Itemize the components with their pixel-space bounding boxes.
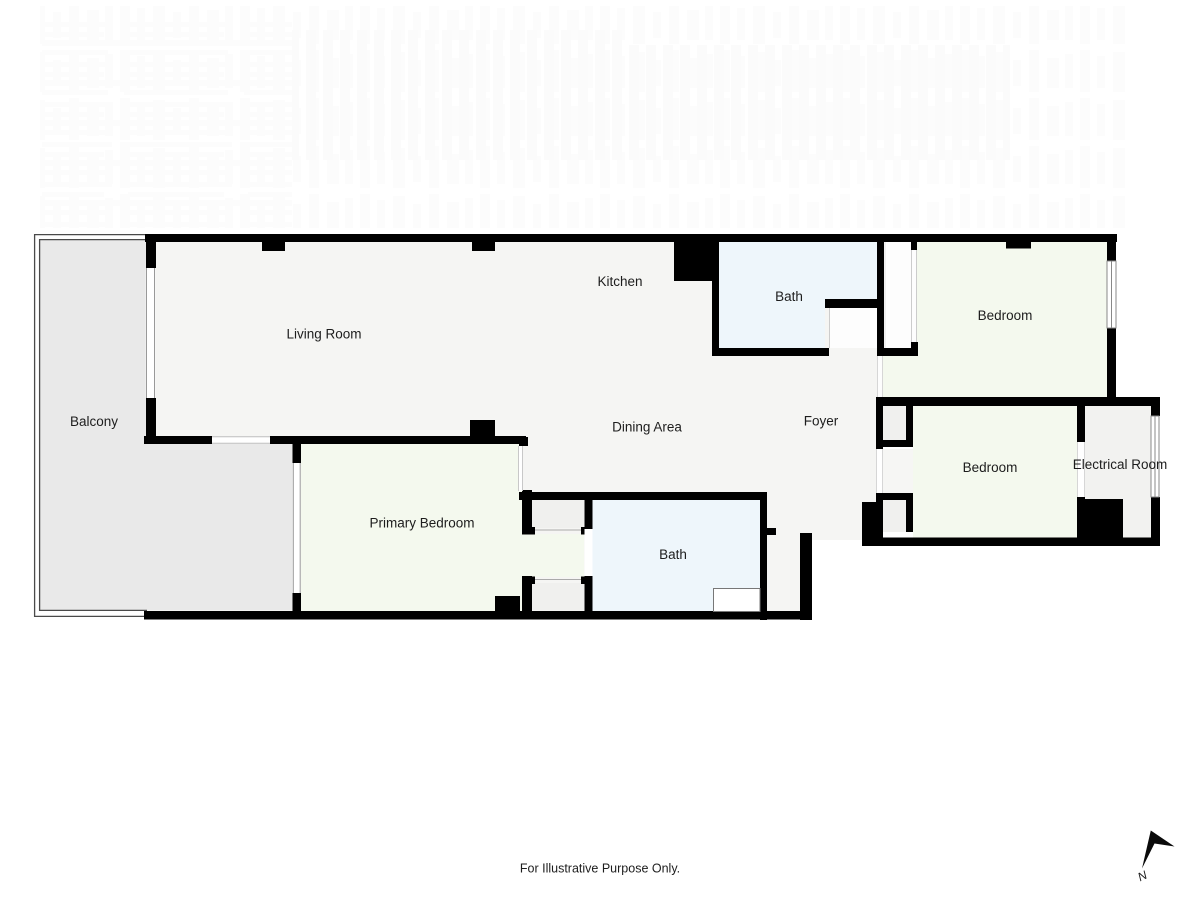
svg-text:Primary Bedroom: Primary Bedroom [369,516,474,531]
svg-text:Kitchen: Kitchen [597,274,642,289]
svg-text:Balcony: Balcony [70,414,118,429]
svg-text:Living Room: Living Room [286,327,361,342]
svg-text:Foyer: Foyer [804,414,839,429]
svg-text:For Illustrative Purpose Only.: For Illustrative Purpose Only. [520,862,680,876]
svg-text:Electrical Room: Electrical Room [1073,457,1168,472]
svg-text:Bath: Bath [659,547,687,562]
svg-text:Dining Area: Dining Area [612,420,682,435]
svg-text:Bedroom: Bedroom [963,460,1018,475]
svg-text:Bedroom: Bedroom [978,308,1033,323]
svg-text:Bath: Bath [775,289,803,304]
